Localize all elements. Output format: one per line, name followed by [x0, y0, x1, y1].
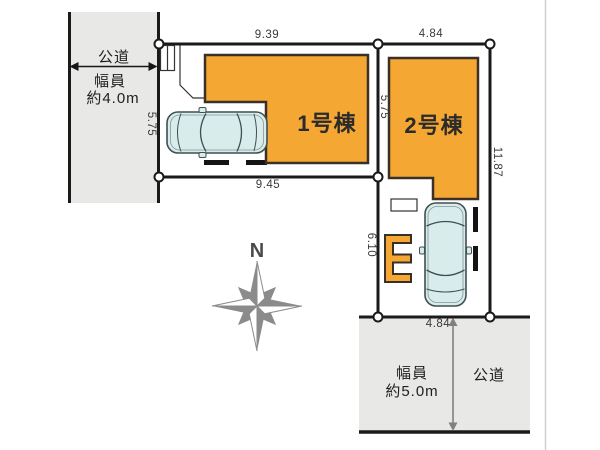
left-road-name: 公道: [90, 46, 138, 67]
lot2-dim-bottom: 4.84: [414, 318, 462, 330]
bottom-road-width-line2: 約5.0m: [376, 380, 448, 401]
lot1-wheel-stop-2: [246, 160, 267, 165]
lot2-stairs: [385, 235, 411, 282]
lot1-dim-bottom: 9.45: [244, 179, 292, 191]
lot2-entrance-step: [391, 199, 417, 211]
lot1-dim-top: 9.39: [243, 29, 291, 41]
car-1: [167, 108, 267, 158]
left-road-width-line2: 約4.0m: [77, 87, 149, 108]
site-plan: 公道 幅員 約4.0m 9.39 5.75 9.45 1号棟 4.84 5.75…: [0, 0, 600, 450]
bottom-road-name: 公道: [465, 364, 513, 385]
lot2-wheel-stop-1: [473, 207, 478, 232]
compass-rose-icon: [212, 261, 302, 351]
lot1-wheel-stop-1: [204, 160, 229, 165]
compass-north-label: N: [237, 240, 277, 263]
lot2-wheel-stop-2: [473, 246, 478, 271]
lot2-dim-left-lower: 6.10: [365, 225, 377, 265]
lot1-dim-left: 5.75: [145, 104, 157, 144]
lot2-dim-top: 4.84: [407, 28, 455, 40]
lot2-dim-right: 11.87: [491, 142, 503, 182]
building-2-label: 2号棟: [384, 108, 484, 140]
building-1-label: 1号棟: [277, 106, 377, 138]
car-2: [420, 203, 472, 306]
